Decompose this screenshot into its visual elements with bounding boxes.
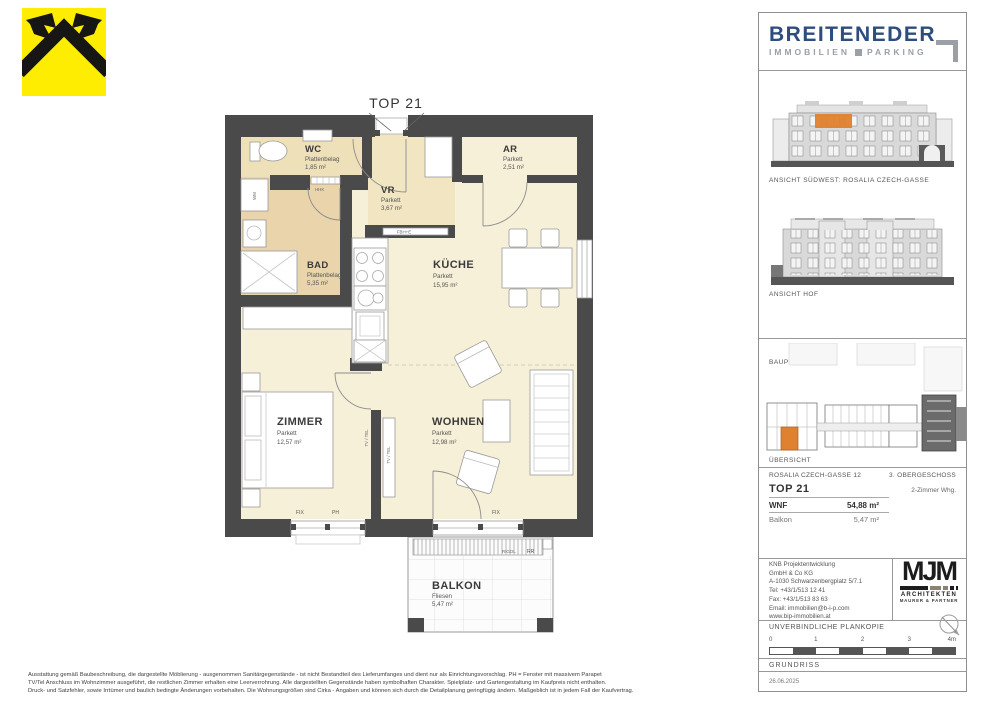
plankopie-label: UNVERBINDLICHE PLANKOPIE: [759, 624, 966, 631]
room-floor-ar: Parkett: [503, 156, 523, 163]
scale-tick: 3: [908, 637, 911, 643]
disclaimer-text: Ausstattung gemäß Baubeschreibung, die d…: [28, 671, 628, 695]
elevation-hof-caption: ANSICHT HOF: [759, 291, 966, 298]
mjm-bar-icon: [900, 586, 958, 590]
room-area-wohnen: 12,98 m²: [432, 439, 456, 446]
window-sill: [296, 535, 360, 544]
elevation-southwest-image: [771, 99, 954, 173]
room-area-ar: 2,51 m²: [503, 164, 524, 171]
shaft: [425, 137, 452, 177]
wnf-label: WNF: [769, 501, 834, 510]
scale-segments: [769, 647, 956, 655]
tvtel-label: TV / TEL: [386, 446, 391, 464]
room-label-vr: VR: [381, 185, 395, 196]
address-row: ROSALIA CZECH-GASSE 12 3. OBERGESCHOSS: [759, 472, 966, 479]
room-floor-vr: Parkett: [381, 197, 401, 204]
north-arrow-icon: [937, 611, 963, 639]
disclaimer-line-3: Druck- und Satzfehler, sowie Irrtümer un…: [28, 687, 628, 695]
nightstand: [242, 373, 260, 391]
floor-level: 3. OBERGESCHOSS: [889, 472, 956, 479]
title-block-panel: BREITENEDER IMMOBILIEN PARKING ANSICHT S…: [758, 12, 967, 692]
elevation-southwest-caption: ANSICHT SÜDWEST: ROSALIA CZECH-GASSE: [759, 177, 966, 184]
breiteneder-logo: BREITENEDER IMMOBILIEN PARKING: [759, 23, 966, 70]
brand-sub-left: IMMOBILIEN: [769, 47, 850, 57]
balkon-value: 5,47 m²: [834, 515, 879, 524]
towel-radiator: [311, 177, 340, 184]
room-area-vr: 3,67 m²: [381, 205, 402, 212]
chair: [509, 229, 527, 247]
address: ROSALIA CZECH-GASSE 12: [769, 472, 861, 479]
toilet-tank: [250, 142, 260, 161]
fix-label: FIX: [296, 510, 304, 516]
unit-type: 2-Zimmer Whg.: [911, 487, 956, 494]
tvtel-label: TV / TEL: [364, 429, 369, 447]
room-floor-balkon: Fliesen: [432, 593, 453, 600]
room-floor-zimmer: Parkett: [277, 430, 297, 437]
wnf-value: 54,88 m²: [834, 501, 879, 510]
room-area-balkon: 5,47 m²: [432, 601, 453, 608]
fix-label: FIX: [492, 510, 500, 516]
window-kueche: [577, 240, 592, 298]
drainage-grate: [413, 539, 543, 555]
room-label-wohnen: WOHNEN: [432, 416, 485, 428]
room-label-balkon: BALKON: [432, 580, 481, 592]
rigol-label: RIGOL: [502, 549, 516, 554]
overview-caption: ÜBERSICHT: [759, 457, 966, 464]
scale-tick: 1: [814, 637, 817, 643]
plan-title: TOP 21: [369, 95, 423, 111]
room-floor-wohnen: Parkett: [432, 430, 452, 437]
scale-tick: 4m: [948, 637, 956, 643]
room-label-ar: AR: [503, 144, 517, 155]
unit-row: TOP 21 2-Zimmer Whg.: [759, 483, 966, 495]
fbhe-label: FBH+E: [397, 230, 411, 235]
balcony-post: [408, 618, 424, 632]
rr-label: RR: [527, 549, 535, 555]
scale-bar: 0 1 2 3 4m: [769, 637, 956, 657]
room-area-bad: 5,35 m²: [307, 280, 328, 287]
coffee-table: [483, 400, 510, 442]
plan-date: 26.06.2025: [759, 679, 966, 685]
raiffeisen-logo-icon: [22, 8, 106, 96]
wnf-row: WNF 54,88 m²: [759, 501, 966, 510]
room-label-bad: BAD: [307, 260, 328, 271]
pillow: [245, 396, 261, 436]
entrance-door: [376, 118, 407, 134]
pillow: [245, 440, 261, 480]
scale-ticks: 0 1 2 3 4m: [769, 637, 956, 645]
floor-plan: TOP 21 WC Plattenbelag 1,85 m² VR Parket…: [222, 92, 606, 662]
wc-cabinet: [303, 130, 332, 141]
room-area-kueche: 15,95 m²: [433, 282, 457, 289]
mjm-wordmark: MJM: [892, 558, 966, 584]
brand-sub-right: PARKING: [867, 47, 927, 57]
balcony-post: [537, 618, 553, 632]
scale-tick: 0: [769, 637, 772, 643]
chair: [509, 289, 527, 307]
highlighted-unit: [781, 427, 798, 450]
square-icon: [855, 49, 862, 56]
room-area-wc: 1,85 m²: [305, 164, 326, 171]
floor-convector: [383, 228, 448, 235]
room-label-wc: WC: [305, 144, 321, 155]
scale-tick: 2: [861, 637, 864, 643]
drawing-type-label: GRUNDRISS: [759, 662, 966, 669]
site-plan-image: [759, 343, 966, 455]
disclaimer-line-2: TV/Tel Anschluss im Wohnzimmer ausgeführ…: [28, 679, 628, 687]
nightstand: [242, 489, 260, 507]
dining-table: [502, 248, 572, 288]
disclaimer-line-1: Ausstattung gemäß Baubeschreibung, die d…: [28, 671, 628, 679]
room-floor-wc: Plattenbelag: [305, 156, 340, 163]
chair: [541, 289, 559, 307]
balkon-row: Balkon 5,47 m²: [759, 515, 966, 524]
elevation-hof-image: [771, 211, 954, 289]
toilet: [259, 141, 287, 161]
balkon-label: Balkon: [769, 515, 834, 524]
highlighted-unit: [815, 114, 852, 128]
ph-label: PH: [332, 510, 339, 516]
wm-label: WM: [252, 192, 257, 200]
room-floor-bad: Plattenbelag: [307, 272, 342, 279]
unit-number: TOP 21: [769, 483, 810, 495]
architects-line2: MAURER & PARTNER: [892, 598, 966, 603]
room-area-zimmer: 12,57 m²: [277, 439, 301, 446]
wardrobe: [243, 307, 352, 329]
rainpipe: [543, 539, 552, 549]
corner-bracket-icon: [936, 40, 958, 62]
chair: [541, 229, 559, 247]
room-floor-kueche: Parkett: [433, 273, 453, 280]
room-label-kueche: KÜCHE: [433, 258, 474, 271]
hhk-label: HHK: [315, 187, 324, 192]
room-label-zimmer: ZIMMER: [277, 416, 323, 428]
